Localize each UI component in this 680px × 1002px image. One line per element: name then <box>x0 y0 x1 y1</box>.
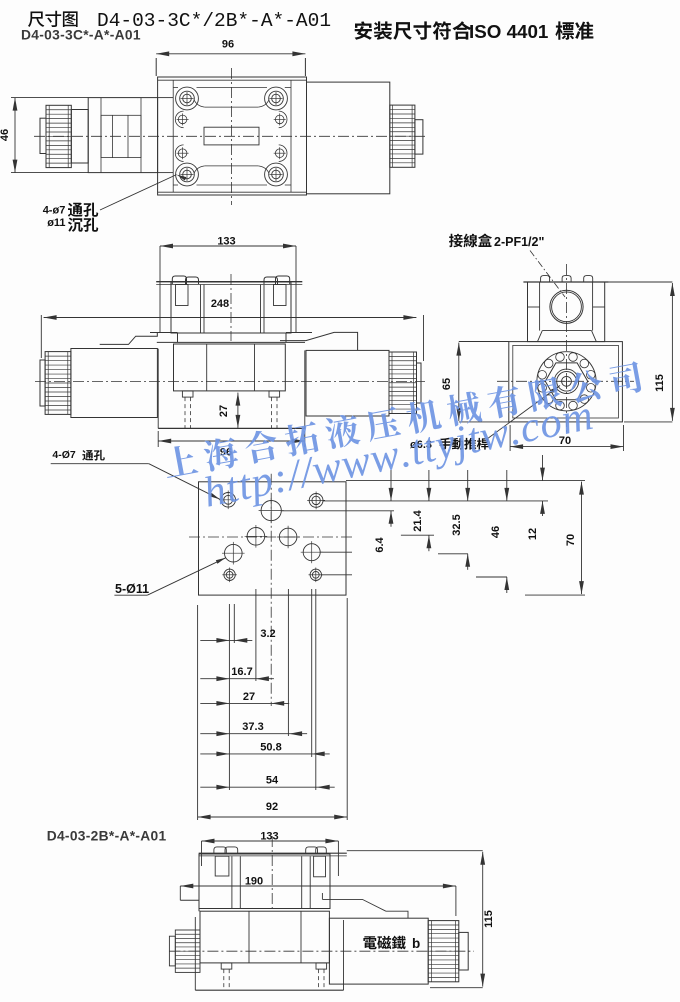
svg-text:ISO 4401: ISO 4401 <box>469 21 548 42</box>
svg-text:133: 133 <box>260 831 278 843</box>
svg-text:54: 54 <box>266 775 279 787</box>
svg-text:16.7: 16.7 <box>231 666 252 678</box>
svg-text:46: 46 <box>0 129 11 141</box>
svg-text:46: 46 <box>490 526 502 538</box>
svg-text:92: 92 <box>266 801 278 813</box>
svg-text:50.8: 50.8 <box>260 741 281 753</box>
svg-text:5-Ø11: 5-Ø11 <box>115 582 149 596</box>
svg-text:4-Ø7: 4-Ø7 <box>52 449 76 461</box>
svg-text:190: 190 <box>245 876 263 888</box>
svg-text:70: 70 <box>565 534 577 546</box>
svg-text:2-PF1/2": 2-PF1/2" <box>494 235 544 249</box>
svg-text:133: 133 <box>217 236 235 248</box>
svg-text:6.4: 6.4 <box>374 536 386 552</box>
svg-text:4-ø7: 4-ø7 <box>43 205 66 217</box>
svg-text:b: b <box>412 936 420 951</box>
svg-text:27: 27 <box>243 691 255 703</box>
svg-text:D4-03-2B*-A*-A01: D4-03-2B*-A*-A01 <box>47 828 167 843</box>
svg-text:D4-03-3C*-A*-A01: D4-03-3C*-A*-A01 <box>21 28 141 43</box>
svg-text:248: 248 <box>211 298 229 310</box>
svg-text:12: 12 <box>527 528 539 540</box>
svg-text:3.2: 3.2 <box>260 628 275 640</box>
svg-text:21.4: 21.4 <box>412 509 424 531</box>
svg-text:70: 70 <box>559 435 571 447</box>
svg-text:65: 65 <box>441 378 453 390</box>
svg-text:115: 115 <box>654 374 666 392</box>
svg-text:27: 27 <box>218 405 230 417</box>
svg-text:96: 96 <box>222 39 234 51</box>
svg-text:ø11: ø11 <box>47 217 65 229</box>
svg-text:37.3: 37.3 <box>242 721 263 733</box>
svg-text:32.5: 32.5 <box>451 514 463 535</box>
svg-text:115: 115 <box>483 910 495 928</box>
